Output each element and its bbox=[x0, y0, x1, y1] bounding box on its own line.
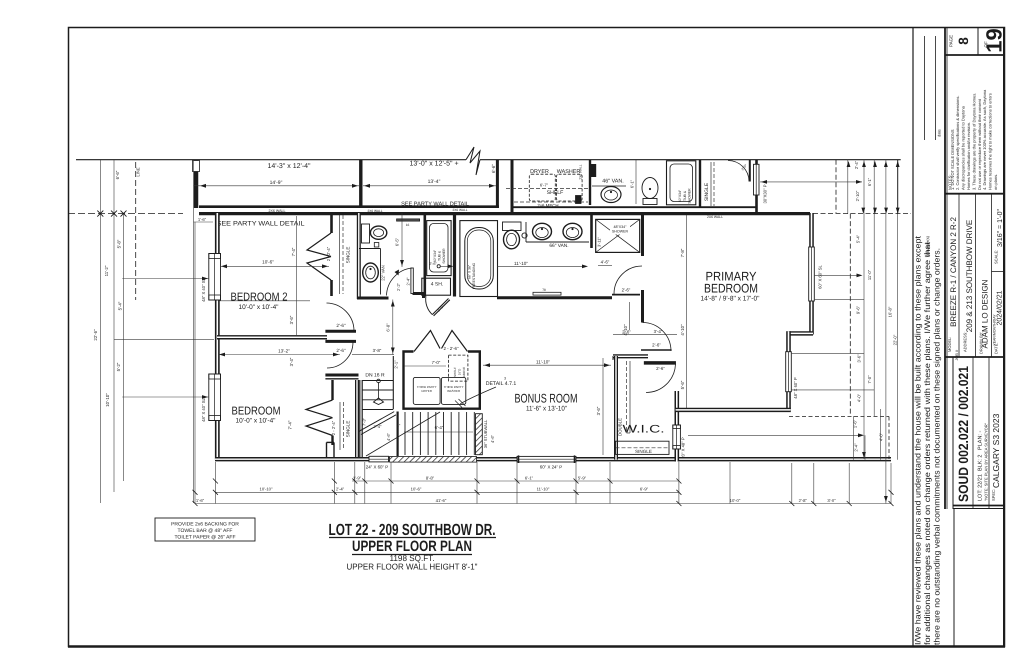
svg-text:1'-6": 1'-6" bbox=[196, 498, 205, 503]
svg-text:ADAM LO DESIGN: ADAM LO DESIGN bbox=[981, 279, 990, 348]
svg-text:6'-4": 6'-4" bbox=[435, 425, 444, 430]
svg-text:22'-6": 22'-6" bbox=[93, 329, 98, 341]
svg-text:66" X 36": 66" X 36" bbox=[468, 264, 472, 279]
svg-text:48" X 40" SL: 48" X 40" SL bbox=[201, 277, 206, 301]
svg-text:2 - 2'-4": 2 - 2'-4" bbox=[331, 420, 336, 435]
svg-text:SCALE:: SCALE: bbox=[994, 250, 999, 264]
svg-text:2 - 2'-4": 2 - 2'-4" bbox=[326, 246, 331, 261]
svg-text:SHOWER: SHOWER bbox=[688, 188, 692, 204]
svg-text:2'-6": 2'-6" bbox=[656, 366, 665, 371]
svg-text:60" X 60" SL: 60" X 60" SL bbox=[818, 264, 823, 288]
svg-text:16"D: 16"D bbox=[458, 368, 462, 375]
svg-text:36" STUBWALL: 36" STUBWALL bbox=[483, 419, 488, 448]
svg-text:Do not use or reproduce them w: Do not use or reproduce them without the… bbox=[977, 98, 982, 190]
svg-text:7'-8": 7'-8" bbox=[680, 248, 685, 257]
svg-text:10'-10": 10'-10" bbox=[260, 487, 274, 492]
svg-text:SINGLE: SINGLE bbox=[346, 247, 351, 264]
svg-text:SOUD 002.022 / 002.021: SOUD 002.022 / 002.021 bbox=[956, 366, 971, 502]
svg-text:10'-0" x 10'-4": 10'-0" x 10'-4" bbox=[236, 418, 277, 425]
svg-text:WASHER: WASHER bbox=[557, 169, 581, 175]
svg-text:20" X 48" P: 20" X 48" P bbox=[681, 437, 686, 459]
svg-text:46" VAN.: 46" VAN. bbox=[602, 179, 624, 185]
svg-text:SEE PARTY WALL DETAIL: SEE PARTY WALL DETAIL bbox=[401, 201, 469, 207]
svg-text:SHOWER: SHOWER bbox=[612, 230, 629, 234]
svg-text:BEDROOM 2: BEDROOM 2 bbox=[231, 292, 288, 304]
svg-text:4'-6": 4'-6" bbox=[601, 260, 610, 265]
svg-text:3'-6": 3'-6" bbox=[596, 406, 601, 415]
svg-text:1'-9": 1'-9" bbox=[353, 475, 362, 480]
svg-text:BEDROOM: BEDROOM bbox=[232, 406, 281, 418]
svg-text:5'-8": 5'-8" bbox=[117, 239, 122, 248]
svg-text:6'-1": 6'-1" bbox=[630, 179, 635, 188]
svg-text:7'-0": 7'-0" bbox=[867, 375, 872, 384]
svg-text:2'-4": 2'-4" bbox=[854, 160, 859, 169]
svg-text:6'-1": 6'-1" bbox=[867, 177, 872, 186]
svg-text:2'-4": 2'-4" bbox=[854, 443, 859, 452]
svg-text:11'-10": 11'-10" bbox=[537, 487, 550, 492]
svg-text:5'-2": 5'-2" bbox=[116, 362, 121, 371]
svg-text:9'-6": 9'-6" bbox=[856, 305, 861, 314]
svg-text:5'-9": 5'-9" bbox=[578, 475, 587, 480]
svg-text:TOILET PAPER @ 26" AFF: TOILET PAPER @ 26" AFF bbox=[174, 535, 235, 541]
svg-text:SEE PARTY WALL DETAIL: SEE PARTY WALL DETAIL bbox=[217, 221, 305, 228]
svg-text:6'-8": 6'-8" bbox=[386, 323, 391, 332]
svg-text:SINGLE: SINGLE bbox=[635, 449, 652, 454]
svg-text:60"X34": 60"X34" bbox=[433, 249, 437, 262]
svg-text:13'-2": 13'-2" bbox=[278, 349, 290, 354]
svg-text:4 SH.: 4 SH. bbox=[431, 282, 444, 288]
svg-text:6'-1": 6'-1" bbox=[525, 475, 534, 480]
svg-text:3'-6": 3'-6" bbox=[289, 315, 294, 324]
svg-text:1. DO NOT SCALE DIMENSIONS: 1. DO NOT SCALE DIMENSIONS bbox=[950, 129, 955, 190]
svg-text:MODEL:: MODEL: bbox=[947, 337, 952, 352]
svg-text:2 - 2'-6": 2 - 2'-6" bbox=[443, 346, 459, 351]
svg-text:3/16" = 1'-0": 3/16" = 1'-0" bbox=[996, 208, 1004, 247]
svg-text:3'-8": 3'-8" bbox=[373, 348, 382, 353]
svg-text:2'-6": 2'-6" bbox=[652, 343, 661, 348]
svg-text:10'-6": 10'-6" bbox=[262, 260, 274, 265]
svg-text:19: 19 bbox=[982, 28, 1007, 52]
svg-text:CALGARY S3 2023: CALGARY S3 2023 bbox=[991, 413, 1001, 488]
svg-text:1'-6": 1'-6" bbox=[198, 217, 207, 222]
svg-text:2'-4": 2'-4" bbox=[374, 424, 383, 429]
svg-text:4'-10": 4'-10" bbox=[680, 324, 685, 336]
svg-text:41'-6": 41'-6" bbox=[436, 498, 447, 503]
svg-text:2'-6": 2'-6" bbox=[622, 288, 631, 293]
svg-text:7'-0": 7'-0" bbox=[432, 360, 441, 365]
svg-text:SHELF: SHELF bbox=[453, 367, 457, 377]
svg-text:DN 16 R: DN 16 R bbox=[365, 373, 385, 379]
svg-text:LINE: LINE bbox=[136, 167, 141, 177]
svg-text:2'-6": 2'-6" bbox=[429, 262, 437, 266]
svg-text:SINGLE: SINGLE bbox=[346, 421, 351, 438]
svg-text:PAGE: PAGE bbox=[949, 35, 954, 47]
svg-text:4. Drawings are never 100% acc: 4. Drawings are never 100% accurate. As … bbox=[982, 89, 987, 190]
svg-text:4'-0": 4'-0" bbox=[879, 432, 884, 441]
svg-text:2'-2": 2'-2" bbox=[396, 282, 401, 291]
svg-text:SPEC:: SPEC: bbox=[991, 489, 996, 501]
svg-text:4'-10": 4'-10" bbox=[623, 324, 628, 336]
svg-text:on plans.: on plans. bbox=[993, 174, 998, 190]
svg-text:3'-0": 3'-0" bbox=[827, 498, 836, 503]
svg-text:60"X34": 60"X34" bbox=[678, 189, 682, 202]
svg-text:there are no outstanding verba: there are no outstanding verbal commitme… bbox=[933, 248, 942, 645]
svg-text:10'-0" x 10'-4": 10'-0" x 10'-4" bbox=[239, 304, 280, 311]
svg-text:DRYER: DRYER bbox=[421, 389, 432, 393]
svg-text:I/We have reviewed these plans: I/We have reviewed these plans and under… bbox=[914, 235, 923, 645]
svg-text:3: 3 bbox=[504, 377, 506, 381]
svg-text:SHELF: SHELF bbox=[547, 190, 564, 196]
svg-text:2024/02/21: 2024/02/21 bbox=[996, 290, 1004, 325]
svg-text:30"X30" P: 30"X30" P bbox=[763, 184, 768, 203]
svg-text:48" X 40" SL: 48" X 40" SL bbox=[201, 397, 206, 421]
svg-text:14'-3" x 12'-4": 14'-3" x 12'-4" bbox=[267, 163, 311, 170]
svg-text:UPPER FLOOR WALL HEIGHT 8'-1": UPPER FLOOR WALL HEIGHT 8'-1" bbox=[347, 562, 478, 572]
svg-text:48" X 60" P: 48" X 60" P bbox=[793, 377, 798, 399]
svg-text:TUB &: TUB & bbox=[438, 250, 442, 261]
svg-text:7'-4": 7'-4" bbox=[288, 420, 293, 429]
svg-text:JOB #: JOB # bbox=[955, 349, 959, 360]
svg-text:2X6 WALL: 2X6 WALL bbox=[579, 164, 583, 179]
svg-text:6'-5": 6'-5" bbox=[395, 237, 400, 246]
svg-text:4'-6": 4'-6" bbox=[490, 434, 495, 443]
svg-text:WASHER: WASHER bbox=[447, 389, 461, 393]
svg-text:2'-6": 2'-6" bbox=[336, 348, 346, 353]
svg-text:SINGLE: SINGLE bbox=[704, 182, 710, 201]
svg-text:5'-4": 5'-4" bbox=[856, 234, 861, 243]
svg-text:Any discrepancies shall be rep: Any discrepancies shall be reported to D… bbox=[961, 105, 966, 190]
svg-text:2X6 WALL: 2X6 WALL bbox=[707, 215, 723, 219]
svg-text:60" X 24" P: 60" X 24" P bbox=[540, 465, 562, 470]
svg-text:2'-10": 2'-10" bbox=[855, 190, 860, 201]
svg-text:SHOWER: SHOWER bbox=[442, 248, 446, 264]
svg-text:FREESTANDING: FREESTANDING bbox=[472, 262, 476, 289]
svg-text:BONUS ROOM: BONUS ROOM bbox=[515, 392, 578, 406]
svg-text:DRYER: DRYER bbox=[530, 169, 549, 175]
svg-text:16: 16 bbox=[406, 223, 410, 227]
svg-text:11'-0": 11'-0" bbox=[867, 269, 872, 280]
svg-text:14'-8" / 9'-8" x 17'-0": 14'-8" / 9'-8" x 17'-0" bbox=[701, 296, 761, 303]
svg-text:Homes reserves the right to ma: Homes reserves the right to make correct… bbox=[988, 93, 993, 190]
svg-text:3'-4": 3'-4" bbox=[289, 357, 294, 366]
svg-text:13'-0" x 12'-5" +: 13'-0" x 12'-5" + bbox=[409, 161, 458, 168]
svg-text:5'-6": 5'-6" bbox=[680, 380, 685, 389]
svg-text:16'-8": 16'-8" bbox=[888, 306, 893, 317]
svg-text:11'-2": 11'-2" bbox=[104, 265, 109, 276]
svg-text:10'-10": 10'-10" bbox=[105, 393, 110, 407]
svg-text:2'-6": 2'-6" bbox=[336, 323, 346, 328]
svg-text:6'-6": 6'-6" bbox=[115, 170, 120, 179]
svg-text:6'-7": 6'-7" bbox=[540, 183, 549, 188]
svg-text:209 & 213 SOUTHBOW DRIVE: 209 & 213 SOUTHBOW DRIVE bbox=[965, 220, 974, 332]
svg-text:22" VAN: 22" VAN bbox=[381, 265, 386, 281]
svg-text:PROVIDE 2x6 BACKING FOR: PROVIDE 2x6 BACKING FOR bbox=[171, 522, 239, 528]
svg-text:10'-0": 10'-0" bbox=[730, 498, 741, 503]
svg-text:66" VAN.: 66" VAN. bbox=[549, 243, 568, 249]
svg-text:8'-8": 8'-8" bbox=[426, 475, 435, 480]
svg-text:14'-9": 14'-9" bbox=[270, 180, 283, 186]
svg-text:24" X 60" P: 24" X 60" P bbox=[366, 465, 388, 470]
svg-text:2. Contractor shall verify spe: 2. Contractor shall verify specification… bbox=[955, 96, 960, 190]
svg-text:11'-6" x 13'-10": 11'-6" x 13'-10" bbox=[526, 406, 568, 413]
svg-text:7'-4": 7'-4" bbox=[291, 247, 296, 256]
svg-text:10'-6": 10'-6" bbox=[411, 487, 422, 492]
svg-text:6'-9": 6'-9" bbox=[640, 487, 649, 492]
svg-text:date: date bbox=[937, 128, 942, 137]
svg-text:8: 8 bbox=[956, 37, 971, 45]
svg-text:for additional changes as note: for additional changes as noted on chang… bbox=[923, 241, 932, 645]
svg-text:3. These drawings are the prop: 3. These drawings are the property of Da… bbox=[971, 93, 976, 190]
svg-text:11'-10": 11'-10" bbox=[536, 360, 550, 365]
svg-text:13'-4": 13'-4" bbox=[428, 179, 441, 185]
svg-text:48"X34": 48"X34" bbox=[614, 225, 628, 229]
svg-text:22'-0": 22'-0" bbox=[893, 334, 898, 345]
svg-text:3'-11": 3'-11" bbox=[597, 236, 602, 246]
svg-text:7'-3": 7'-3" bbox=[362, 417, 367, 426]
svg-text:"NOTE: SITE PLAN BY AREA SURVE: "NOTE: SITE PLAN BY AREA SURVEYOR" bbox=[984, 422, 989, 501]
svg-text:3'-4": 3'-4" bbox=[654, 329, 663, 334]
svg-text:DETAIL 4.7.1: DETAIL 4.7.1 bbox=[486, 381, 517, 387]
svg-text:TOWEL BAR @ 48" AFF: TOWEL BAR @ 48" AFF bbox=[178, 528, 233, 534]
svg-text:Homes for clarification and/or: Homes for clarification and/or revision. bbox=[966, 122, 971, 190]
svg-text:3'-6": 3'-6" bbox=[857, 354, 862, 363]
svg-text:2'-1": 2'-1" bbox=[394, 360, 399, 369]
svg-text:4'-0": 4'-0" bbox=[857, 393, 862, 402]
svg-text:6'-6": 6'-6" bbox=[491, 164, 496, 173]
svg-text:ABOVE: ABOVE bbox=[462, 367, 466, 377]
svg-text:5'-4": 5'-4" bbox=[118, 301, 123, 310]
svg-text:4'-6": 4'-6" bbox=[386, 432, 391, 441]
svg-text:BREEZE R-1 / CANYON 2 R-2: BREEZE R-1 / CANYON 2 R-2 bbox=[949, 217, 958, 327]
svg-text:2'-4": 2'-4" bbox=[406, 277, 411, 286]
svg-text:78: 78 bbox=[542, 288, 546, 292]
svg-text:11'-10": 11'-10" bbox=[514, 261, 528, 266]
svg-text:W.I.C.: W.I.C. bbox=[623, 424, 665, 436]
svg-text:2X6 WALL: 2X6 WALL bbox=[452, 208, 467, 212]
svg-text:2'-8": 2'-8" bbox=[799, 498, 808, 503]
svg-text:TUB &: TUB & bbox=[683, 190, 687, 201]
svg-text:BEDROOM: BEDROOM bbox=[704, 282, 758, 296]
svg-text:LOT 22 - 209 SOUTHBOW DR.: LOT 22 - 209 SOUTHBOW DR. bbox=[329, 521, 496, 539]
svg-text:ADDRESS:: ADDRESS: bbox=[963, 332, 968, 352]
svg-text:2'-4": 2'-4" bbox=[336, 487, 345, 492]
